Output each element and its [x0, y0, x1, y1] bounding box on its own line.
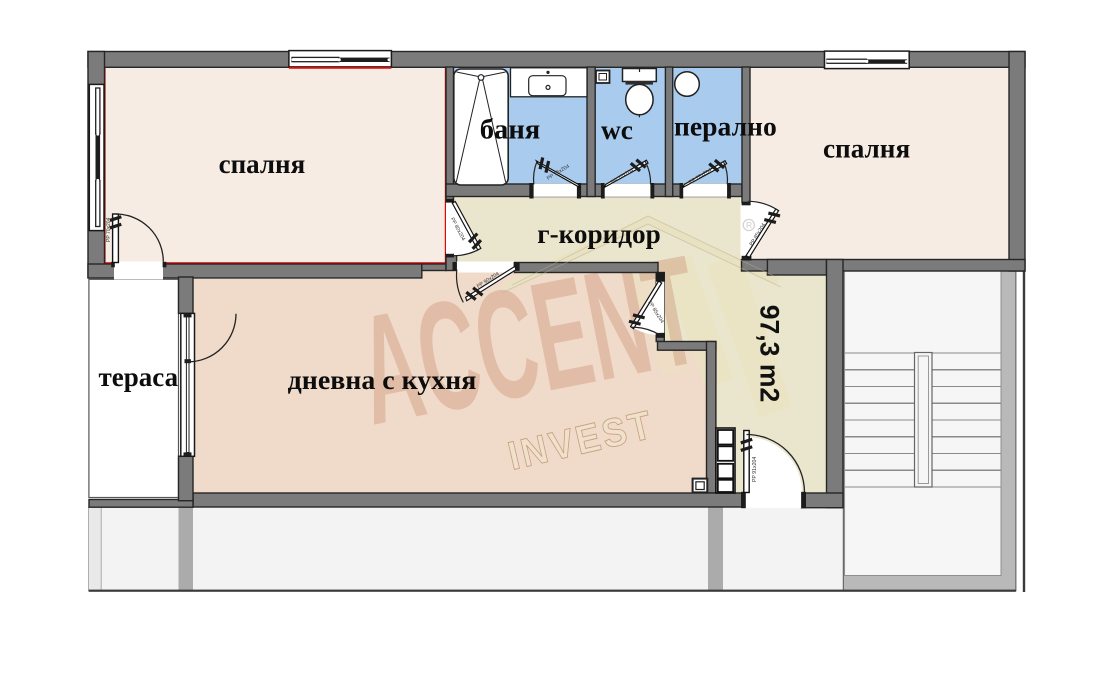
svg-text:97,3 m2: 97,3 m2	[755, 305, 785, 403]
svg-text:wc: wc	[601, 115, 633, 145]
svg-text:г-коридор: г-коридор	[537, 219, 661, 249]
svg-text:PP 70x204: PP 70x204	[106, 217, 112, 242]
svg-text:спалня: спалня	[219, 149, 306, 179]
svg-text:тераса: тераса	[99, 362, 179, 392]
svg-text:баня: баня	[480, 114, 541, 145]
svg-text:PP 91x204: PP 91x204	[752, 457, 758, 482]
svg-text:спалня: спалня	[823, 134, 910, 164]
svg-text:дневна с кухня: дневна с кухня	[288, 365, 477, 396]
svg-text:перално: перално	[674, 110, 777, 141]
svg-text:R: R	[746, 220, 752, 230]
